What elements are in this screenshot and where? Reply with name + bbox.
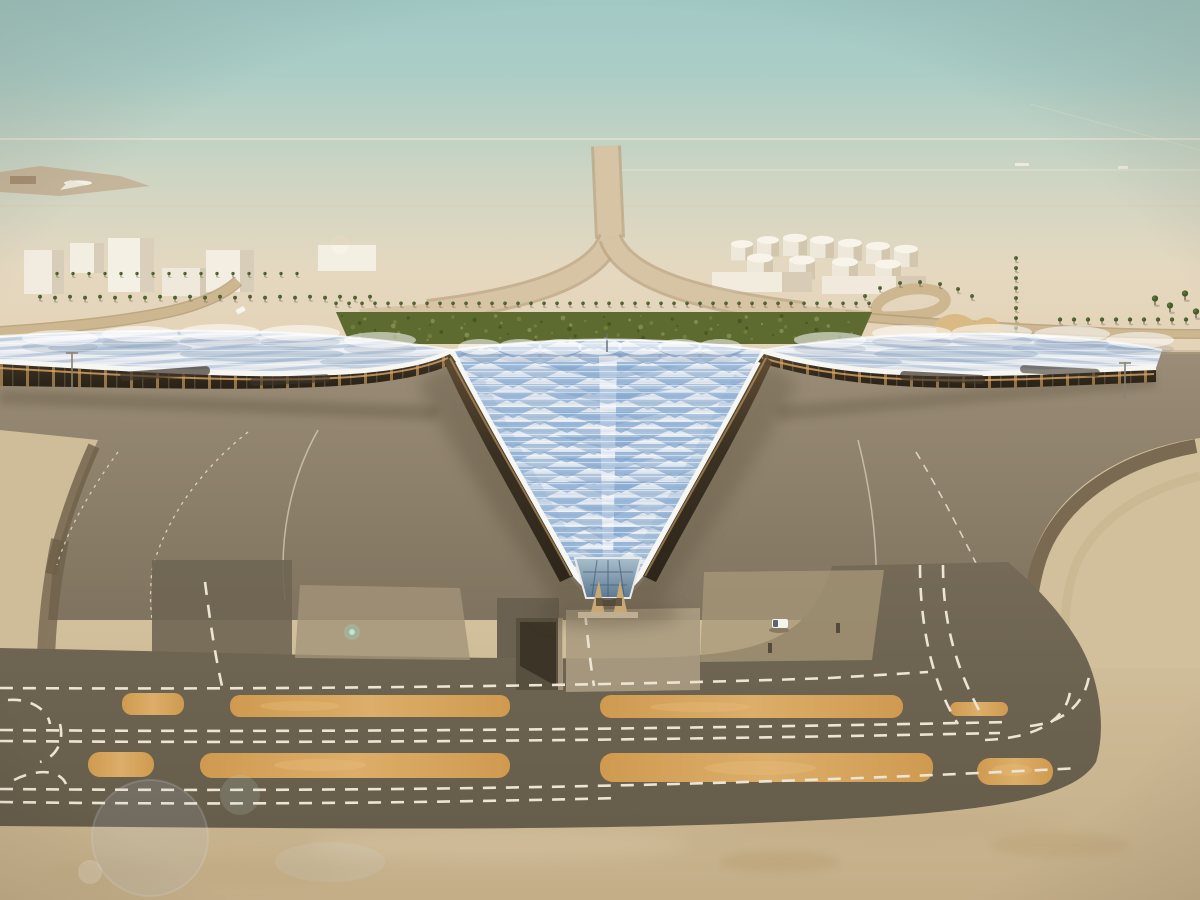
vignette	[0, 0, 1200, 900]
render-canvas	[0, 0, 1200, 900]
airport-aerial-render	[0, 0, 1200, 900]
